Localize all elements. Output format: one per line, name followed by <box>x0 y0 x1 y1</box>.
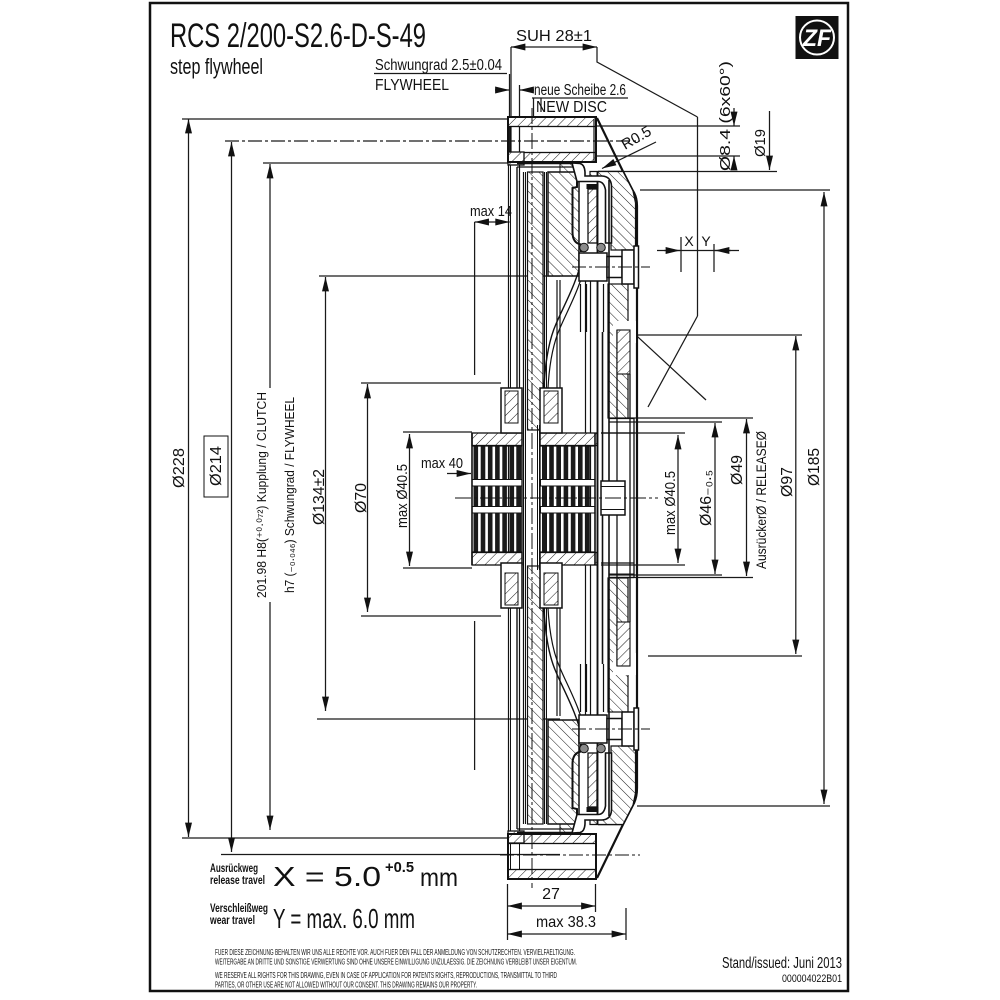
svg-text:Schwungrad 2.5±0.04: Schwungrad 2.5±0.04 <box>375 57 502 74</box>
svg-text:max 40: max 40 <box>421 455 463 472</box>
svg-text:Stand/issued: Juni 2013: Stand/issued: Juni 2013 <box>722 955 842 972</box>
svg-text:ZF: ZF <box>802 25 832 52</box>
svg-text:step flywheel: step flywheel <box>170 54 263 79</box>
svg-text:+0.5: +0.5 <box>385 859 414 876</box>
svg-text:201.98 H8(⁺⁰·⁰⁷²) Kupplung / C: 201.98 H8(⁺⁰·⁰⁷²) Kupplung / CLUTCH <box>254 392 269 598</box>
svg-text:wear travel: wear travel <box>209 913 255 927</box>
svg-text:RCS 2/200-S2.6-D-S-49: RCS 2/200-S2.6-D-S-49 <box>170 17 426 55</box>
svg-text:Ø46₋₀.₅: Ø46₋₀.₅ <box>698 470 715 526</box>
svg-text:Ø228: Ø228 <box>171 448 188 488</box>
svg-text:h7 (₋₀.₀₄₆) Schwungrad / FLYWH: h7 (₋₀.₀₄₆) Schwungrad / FLYWHEEL <box>282 397 297 593</box>
svg-text:SUH 28±1: SUH 28±1 <box>516 28 592 45</box>
svg-text:PARTIES, OR OTHER USE ARE NOT: PARTIES, OR OTHER USE ARE NOT ALLOWED WI… <box>215 980 477 990</box>
svg-text:max 38.3: max 38.3 <box>536 914 596 931</box>
svg-text:NEW DISC: NEW DISC <box>536 99 607 116</box>
svg-text:WE RESERVE ALL RIGHTS FOR THIS: WE RESERVE ALL RIGHTS FOR THIS DRAWING, … <box>215 970 557 980</box>
svg-text:Y: Y <box>701 233 711 249</box>
svg-text:Ø185: Ø185 <box>806 448 823 486</box>
svg-text:neue Scheibe 2.6: neue Scheibe 2.6 <box>534 82 626 99</box>
svg-text:release travel: release travel <box>210 873 265 887</box>
svg-text:max Ø40.5: max Ø40.5 <box>394 464 411 528</box>
svg-text:mm: mm <box>420 864 458 892</box>
svg-text:max Ø40.5: max Ø40.5 <box>662 471 679 535</box>
svg-text:27: 27 <box>542 886 560 903</box>
svg-text:WEITERGABE AN DRITTE UND SONST: WEITERGABE AN DRITTE UND SONSTIGE VERWER… <box>215 957 577 967</box>
svg-text:Ø134±2: Ø134±2 <box>311 469 328 525</box>
svg-text:X: X <box>684 233 694 249</box>
svg-text:AusrückerØ / RELEASEØ: AusrückerØ / RELEASEØ <box>754 431 769 569</box>
svg-text:Ø70: Ø70 <box>353 483 370 513</box>
svg-text:000004022B01: 000004022B01 <box>782 973 842 985</box>
svg-text:Ø8.4 (6x60°): Ø8.4 (6x60°) <box>717 61 734 171</box>
svg-text:max 14: max 14 <box>470 203 512 220</box>
svg-text:Ø214: Ø214 <box>208 446 225 486</box>
svg-text:X = 5.0: X = 5.0 <box>273 861 381 892</box>
svg-text:FUER DIESE ZEICHNUNG BEHALTEN: FUER DIESE ZEICHNUNG BEHALTEN WIR UNS AL… <box>215 947 575 957</box>
svg-text:Ø97: Ø97 <box>779 467 796 497</box>
svg-text:FLYWHEEL: FLYWHEEL <box>375 77 449 94</box>
svg-text:Y = max. 6.0 mm: Y = max. 6.0 mm <box>273 903 415 934</box>
svg-text:Ø49: Ø49 <box>729 455 746 485</box>
svg-text:Ø19: Ø19 <box>752 129 769 157</box>
